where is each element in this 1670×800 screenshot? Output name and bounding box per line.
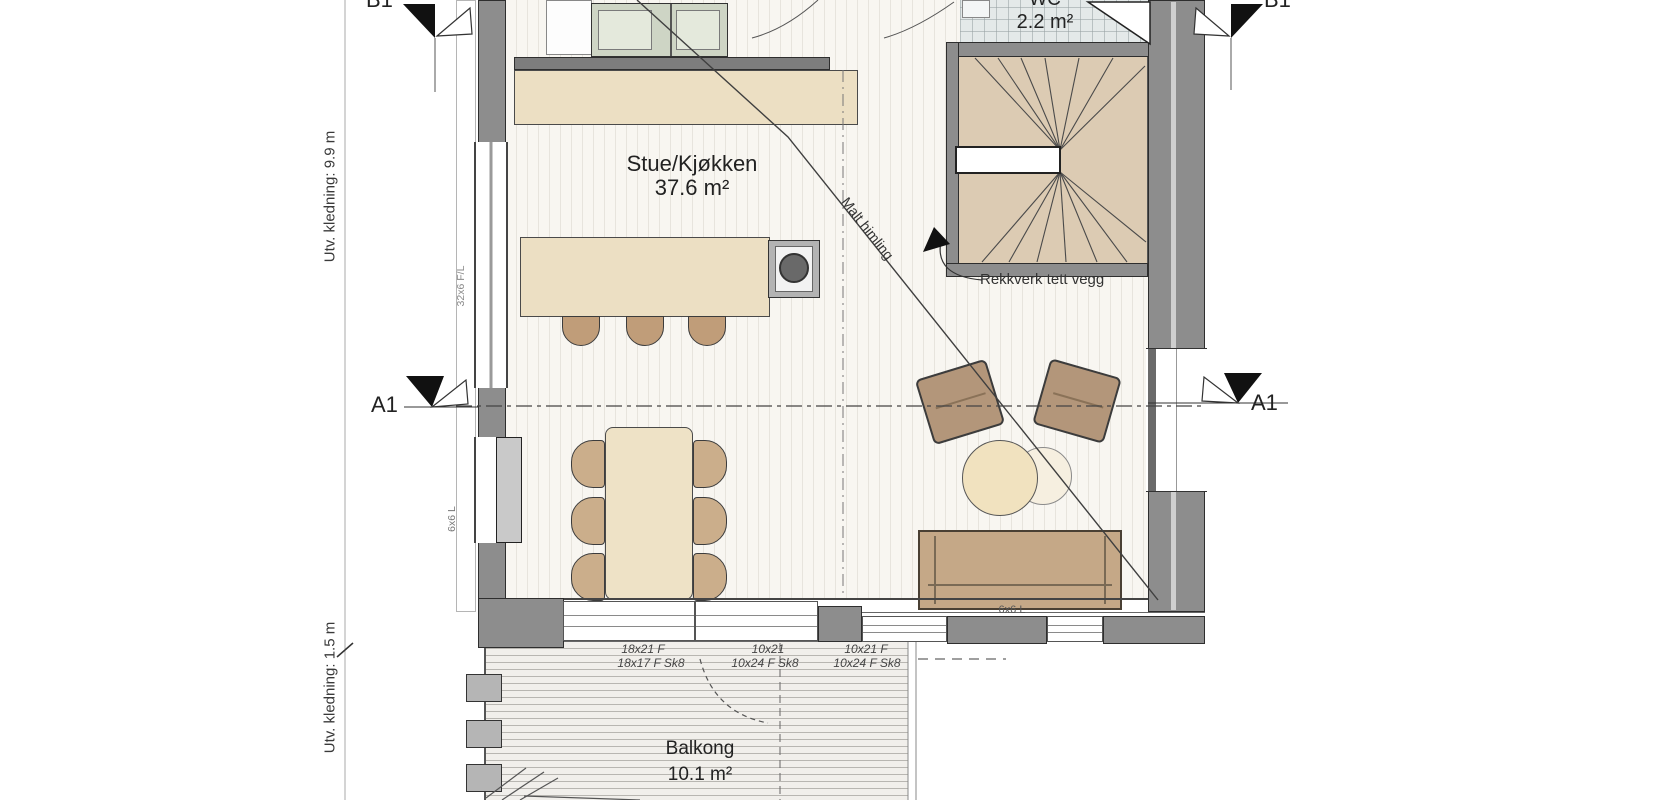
section-label-b1-left: B1 [366,0,393,13]
vent-bottom: 6x6 L [984,604,1040,616]
ceiling-diagonal-line [637,0,1158,600]
section-marker-b1-left [403,4,435,38]
window-spec-detail: 10x24 F Sk8 [805,656,929,670]
entry-door-swing [752,0,818,38]
cladding-dim-top: Utv. kledning: 9.9 m [322,77,339,317]
section-label-a1-left: A1 [371,392,398,418]
railing-note: Rekkverk tett vegg [980,271,1104,288]
wc-name: WC [1000,0,1090,11]
stair-landing [956,147,1060,173]
living-room-label: Stue/Kjøkken 37.6 m² [582,152,802,200]
railing-arrowhead [923,227,950,252]
window-spec: 10x21 [723,642,813,656]
floor-plan: Stue/Kjøkken 37.6 m² WC 2.2 m² Balkong 1… [0,0,1670,800]
railing-arrow-leader [940,241,982,280]
cladding-dim-bottom: Utv. kledning: 1.5 m [322,568,339,800]
section-label-a1-right: A1 [1251,390,1278,416]
wc-door-leaf [1088,2,1150,44]
section-label-b1-right: B1 [1264,0,1291,13]
room-area: 37.6 m² [582,176,802,200]
wc-area: 2.2 m² [995,11,1095,34]
section-marker-b1-right-open [1194,8,1229,36]
hall-door-swing [884,2,954,38]
room-area: 10.1 m² [640,762,760,788]
section-marker-b1-right [1231,4,1263,38]
room-name: Balkong [640,736,760,762]
balcony-corner-hatch [486,768,640,800]
island-spec: 32x6 F/L [455,241,467,331]
window-spec-detail: 18x17 F Sk8 [589,656,713,670]
window-spec: 18x21 F [598,642,688,656]
section-marker-b1-left-open [437,8,472,36]
linework [0,0,1670,800]
balcony-label: Balkong 10.1 m² [640,736,760,788]
room-name: Stue/Kjøkken [582,152,802,176]
vent-left: 6x6 L [446,489,458,549]
window-spec: 10x21 F [821,642,911,656]
